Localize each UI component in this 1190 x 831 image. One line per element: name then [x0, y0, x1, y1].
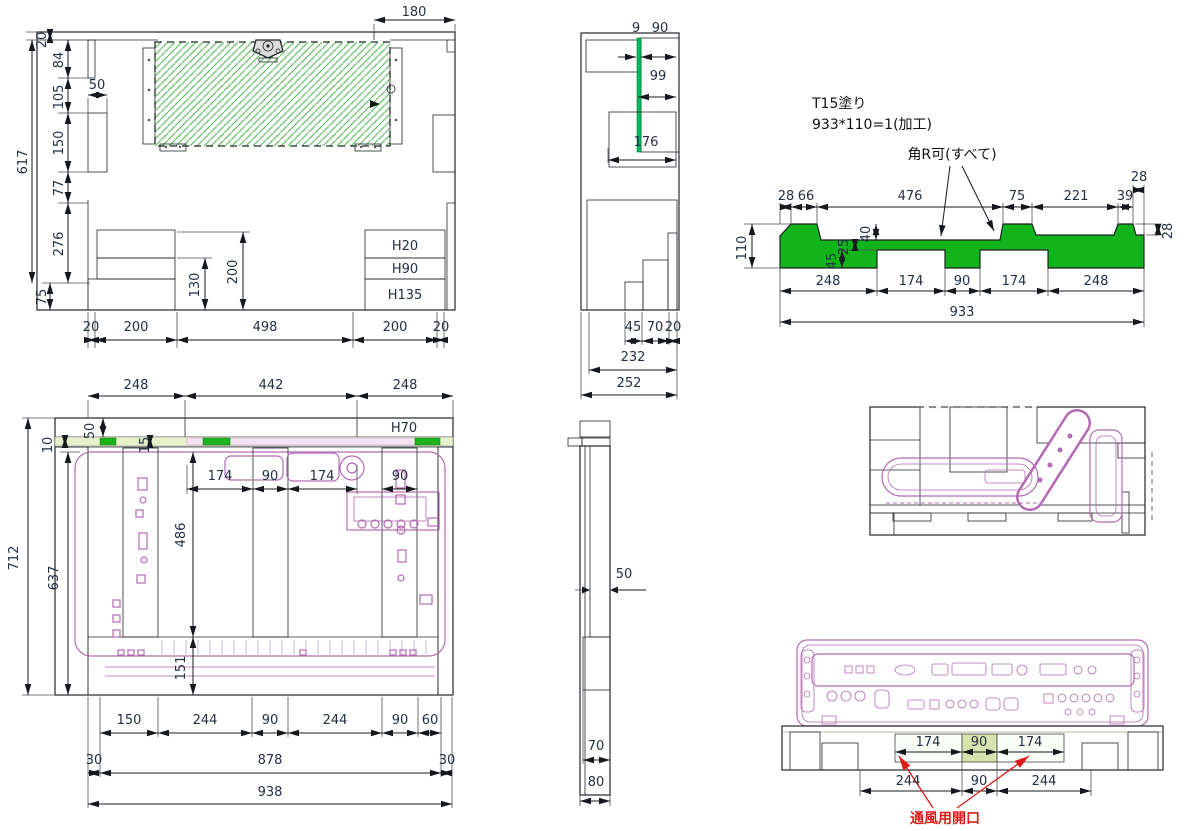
drawing-canvas: H20 H90 H135 180 20 84 50 105 150 617 77…: [0, 0, 1190, 831]
dim-label: 617: [16, 150, 31, 175]
green-rail-section: [1122, 492, 1129, 533]
foam-block-left: [88, 113, 107, 172]
view-top-plan: H20 H90 H135 180 20 84 50 105 150 617 77…: [16, 5, 455, 348]
console-rear-body: [797, 640, 1148, 726]
dim-label: 90: [971, 774, 988, 789]
dim-label: 20: [433, 320, 450, 335]
dim-label: 486: [174, 523, 189, 548]
console-section-outline: [882, 423, 1122, 522]
dim-label: 60: [422, 713, 439, 728]
dim-label: 90: [971, 735, 988, 750]
dim-label: 20: [83, 320, 100, 335]
view-pallet-side: 50 70 80: [568, 421, 646, 806]
dim-label: 221: [1064, 189, 1089, 204]
dim-label: 174: [310, 469, 335, 484]
dim-label: 30: [86, 753, 103, 768]
view-pallet-plan: H70 248 442 248 50 15 10 174 90 174: [7, 378, 455, 808]
dim-label: 200: [383, 320, 408, 335]
dim-label: 40: [859, 226, 874, 243]
dim-label: 9: [632, 21, 640, 36]
dim-label: 50: [616, 567, 633, 582]
dim-label: 150: [52, 131, 67, 156]
label-h90: H90: [392, 262, 418, 277]
dim-label: 442: [259, 378, 284, 393]
dim-label: 45: [625, 320, 642, 335]
console-rear-panel-details: [801, 650, 1144, 724]
dim-label: 45: [825, 253, 840, 270]
side-plate-left: [143, 48, 155, 144]
dim-label: 200: [124, 320, 149, 335]
dim-label: 28: [778, 189, 795, 204]
dim-label: 244: [193, 713, 218, 728]
dim-label: 20: [35, 32, 50, 49]
view-rail-profile: T15塗り 933*110=1(加工) 角R可(すべて) 28 66 476 7…: [735, 95, 1176, 327]
dim-label: 90: [392, 713, 409, 728]
dim-label: 15: [138, 437, 153, 454]
dim-label: 933: [950, 305, 975, 320]
dim-label: 476: [898, 189, 923, 204]
dim-label: 28: [1131, 170, 1148, 185]
dim-label: 84: [52, 52, 67, 69]
hatched-lid-panel: [155, 42, 390, 146]
dim-label: 75: [35, 289, 50, 306]
dim-label: 938: [258, 785, 283, 800]
console-outline: [75, 452, 445, 656]
dim-label: 276: [52, 232, 67, 257]
dim-label: 180: [402, 5, 427, 20]
dim-label: 66: [798, 189, 815, 204]
dim-label: 174: [208, 469, 233, 484]
dim-label: 244: [1032, 774, 1057, 789]
batten: [123, 448, 158, 637]
dim-label: 248: [816, 274, 841, 289]
dim-label: 150: [117, 713, 142, 728]
vent-annotation: 通風用開口: [910, 811, 980, 827]
dim-label: 90: [652, 21, 669, 36]
dim-label: 99: [650, 69, 667, 84]
dim-label: 90: [392, 469, 409, 484]
dim-label: 637: [47, 566, 62, 591]
cad-drawing-page: H20 H90 H135 180 20 84 50 105 150 617 77…: [0, 0, 1190, 831]
dim-label: 75: [1009, 189, 1026, 204]
dim-label: 70: [588, 739, 605, 754]
note-corner-radius: 角R可(すべて): [907, 147, 996, 163]
dim-label: 878: [258, 753, 283, 768]
label-h70: H70: [391, 421, 417, 436]
dim-label: 498: [253, 320, 278, 335]
dim-label: 174: [1002, 274, 1027, 289]
dim-label: 10: [41, 437, 56, 454]
dim-label: 110: [735, 236, 750, 261]
dim-label: 39: [1117, 189, 1134, 204]
dim-label: 248: [393, 378, 418, 393]
side-plate-right: [390, 48, 402, 144]
dim-label: 200: [226, 260, 241, 285]
dim-label: 712: [7, 546, 22, 571]
dim-label: 248: [124, 378, 149, 393]
dim-label: 105: [52, 85, 67, 110]
dim-label: 174: [899, 274, 924, 289]
view-rear-elevation: 174 90 174 244 90 244 通風用開口: [782, 640, 1163, 827]
dim-label: 70: [647, 320, 664, 335]
dim-label: 50: [83, 423, 98, 440]
dim-label: 174: [916, 735, 941, 750]
dim-label: 244: [896, 774, 921, 789]
dim-label: 80: [588, 775, 605, 790]
dim-label: 176: [634, 135, 659, 150]
dim-label: 90: [262, 713, 279, 728]
note-paint-spec: T15塗り: [811, 95, 866, 112]
dim-label: 28: [1161, 223, 1176, 240]
dim-label: 90: [262, 469, 279, 484]
view-side-plan: 9 90 99 176 45 70 20 232 252: [581, 21, 681, 399]
dim-label: 174: [1018, 735, 1043, 750]
label-h20: H20: [392, 239, 418, 254]
dim-label: 244: [323, 713, 348, 728]
dim-label: 90: [954, 274, 971, 289]
dim-label: 248: [1084, 274, 1109, 289]
dim-label: 130: [188, 273, 203, 298]
dim-label: 30: [439, 753, 456, 768]
label-h135: H135: [388, 288, 423, 303]
view-packed-section: [870, 407, 1152, 535]
note-machining: 933*110=1(加工): [812, 117, 932, 133]
dim-label: 151: [174, 656, 189, 681]
dim-label: 77: [52, 180, 67, 197]
dim-label: 50: [89, 78, 106, 93]
dim-label: 20: [665, 320, 682, 335]
foam-block-right: [433, 115, 455, 172]
dim-label: 232: [621, 350, 646, 365]
dim-label: 252: [617, 376, 642, 391]
